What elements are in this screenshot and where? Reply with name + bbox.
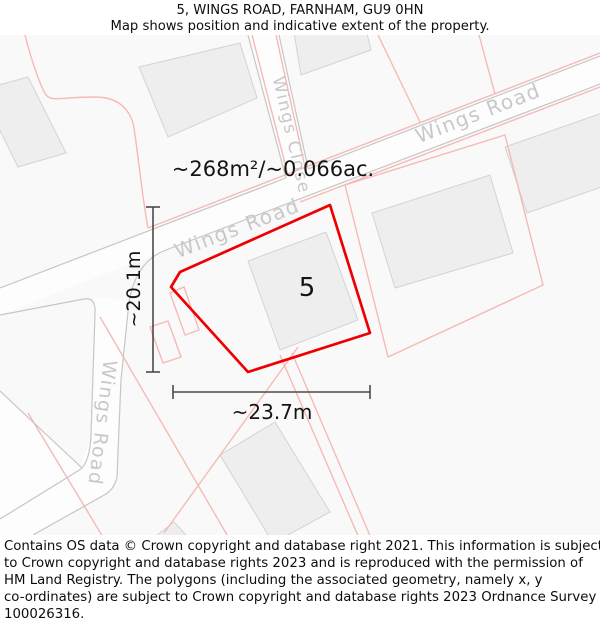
plot-number: 5 [299, 273, 316, 303]
copyright-notice: Contains OS data © Crown copyright and d… [4, 538, 596, 623]
property-map: Wings Road Wings Road Wings Road Wings C… [0, 35, 600, 535]
dimension-height-label: ~20.1m [123, 251, 145, 328]
page-title: 5, WINGS ROAD, FARNHAM, GU9 0HN [0, 3, 600, 19]
copyright-line: Contains OS data © Crown copyright and d… [4, 538, 596, 555]
copyright-line: HM Land Registry. The polygons (includin… [4, 572, 596, 589]
copyright-line: co-ordinates) are subject to Crown copyr… [4, 589, 596, 606]
area-label: ~268m²/~0.066ac. [172, 157, 374, 181]
copyright-line: 100026316. [4, 606, 596, 623]
dimension-width-label: ~23.7m [232, 400, 313, 424]
page-subtitle: Map shows position and indicative extent… [0, 19, 600, 35]
copyright-line: to Crown copyright and database rights 2… [4, 555, 596, 572]
